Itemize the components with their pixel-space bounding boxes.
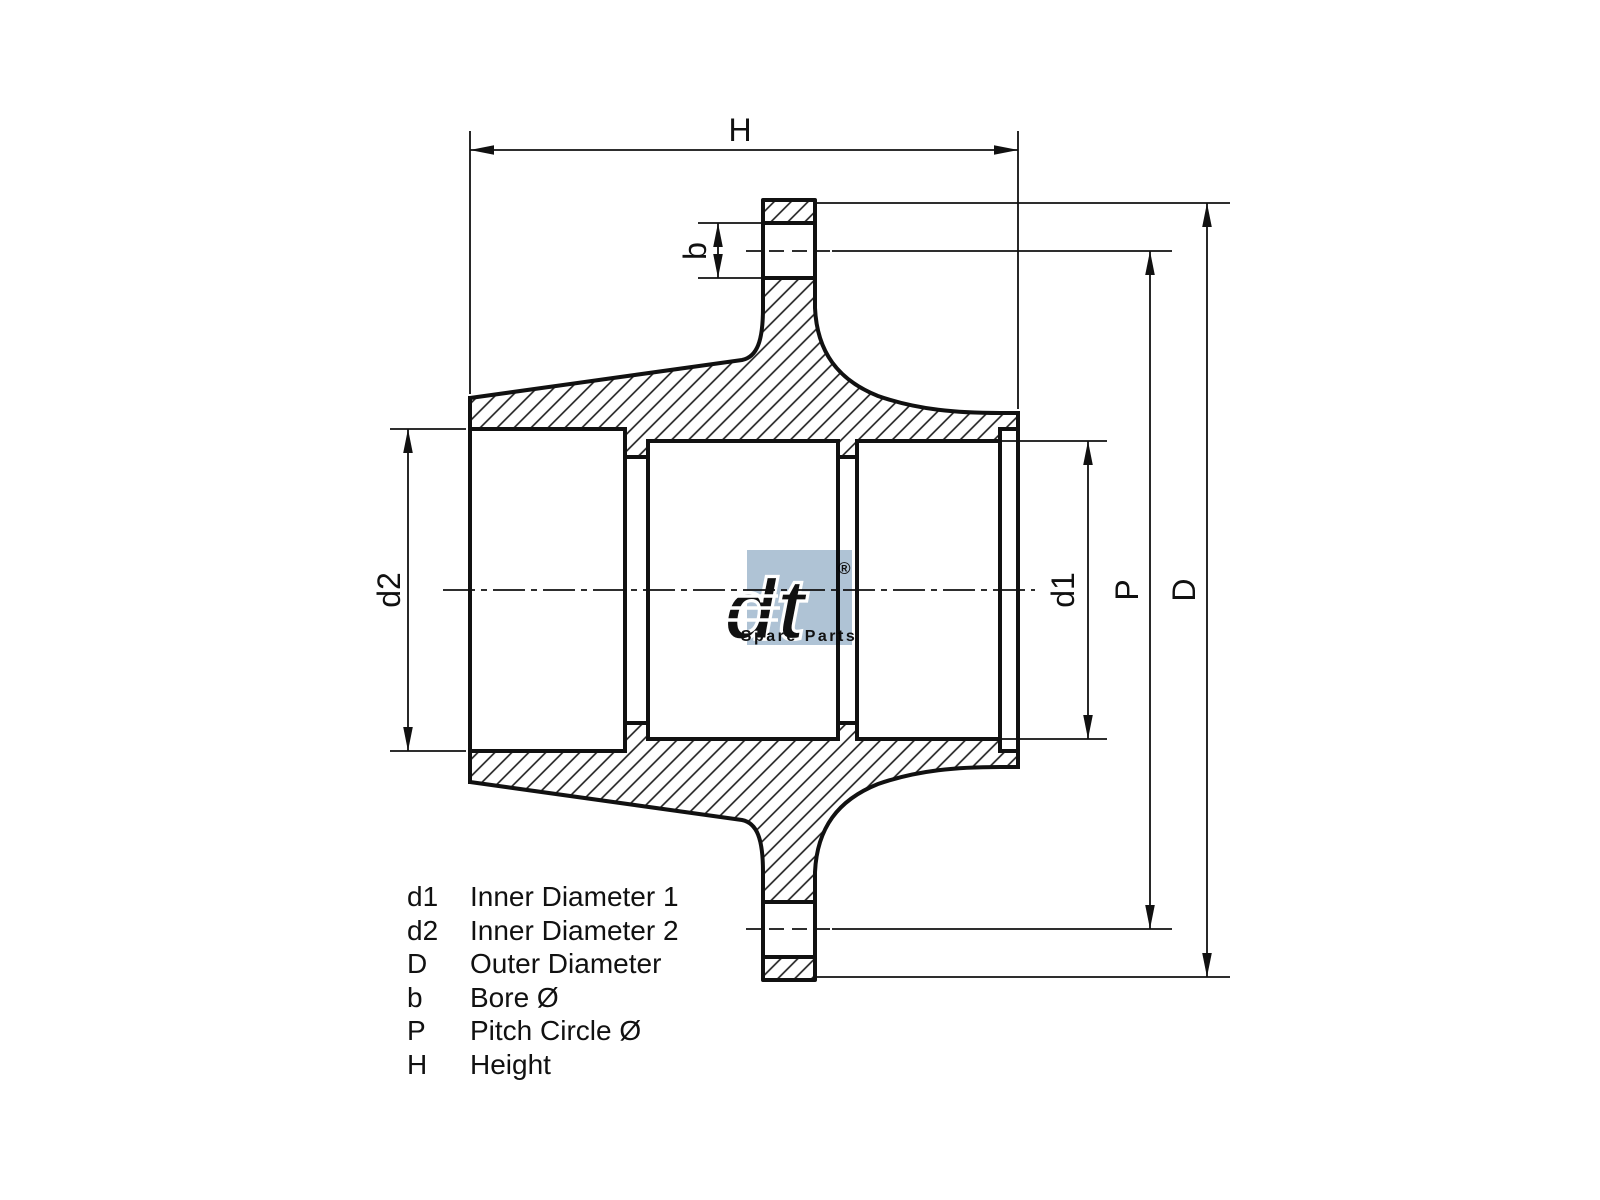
label-d2: d2 [371, 572, 407, 608]
legend-desc-b: Bore Ø [470, 982, 559, 1013]
bore-d1 [857, 441, 1000, 739]
technical-drawing: dt ® Spare Parts H b d2 d1 [0, 0, 1600, 1200]
dt-watermark: dt ® Spare Parts [724, 550, 857, 658]
legend-desc-H: Height [470, 1049, 551, 1080]
label-H: H [728, 112, 751, 148]
label-P: P [1109, 579, 1145, 600]
legend-symbol-P: P [407, 1015, 426, 1046]
legend-symbol-H: H [407, 1049, 427, 1080]
legend-symbol-b: b [407, 982, 423, 1013]
label-D: D [1166, 578, 1202, 601]
legend-desc-d1: Inner Diameter 1 [470, 881, 679, 912]
label-d1: d1 [1045, 572, 1081, 608]
legend-desc-d2: Inner Diameter 2 [470, 915, 679, 946]
drawing-canvas: dt ® Spare Parts H b d2 d1 [0, 0, 1600, 1200]
dt-logo-subtitle: Spare Parts [741, 628, 857, 645]
legend-desc-D: Outer Diameter [470, 948, 661, 979]
legend-symbol-D: D [407, 948, 427, 979]
legend-desc-P: Pitch Circle Ø [470, 1015, 641, 1046]
legend-symbol-d1: d1 [407, 881, 438, 912]
legend-symbol-d2: d2 [407, 915, 438, 946]
label-b: b [677, 242, 713, 260]
registered-mark: ® [838, 559, 851, 578]
